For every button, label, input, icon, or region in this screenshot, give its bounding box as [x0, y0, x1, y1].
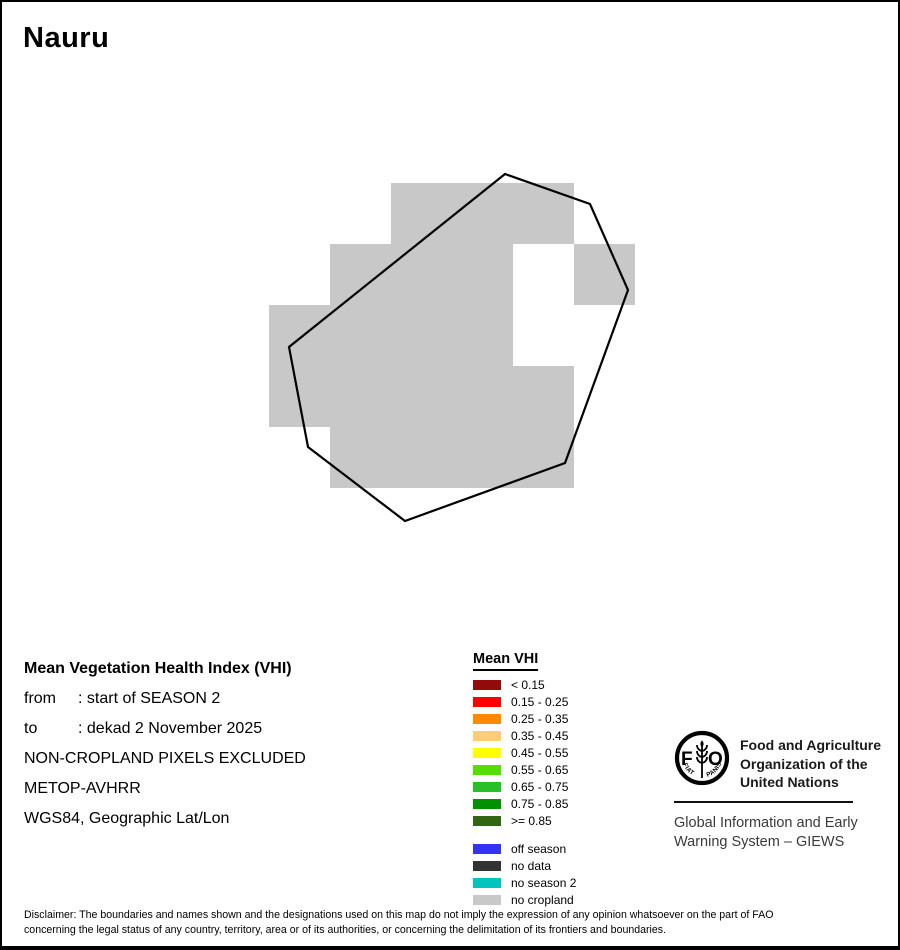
- org-name-line: United Nations: [740, 773, 881, 792]
- map-page: Nauru Mean Vegetation Health Index (VHI)…: [0, 0, 900, 950]
- org-name: Food and Agriculture Organization of the…: [740, 736, 881, 792]
- legend-swatch: [473, 731, 501, 741]
- info-row: METOP-AVHRR: [24, 774, 454, 804]
- no-cropland-cell: [269, 366, 574, 427]
- disclaimer-line: Disclaimer: The boundaries and names sho…: [24, 908, 894, 923]
- legend-label: off season: [511, 842, 566, 856]
- legend-swatch: [473, 782, 501, 792]
- legend-label: 0.75 - 0.85: [511, 797, 568, 811]
- legend-label: 0.55 - 0.65: [511, 763, 568, 777]
- legend-row: 0.65 - 0.75: [472, 778, 672, 795]
- legend-label: >= 0.85: [511, 814, 552, 828]
- legend-row: < 0.15: [472, 676, 672, 693]
- info-rows: from: start of SEASON 2to: dekad 2 Novem…: [24, 684, 454, 834]
- no-cropland-cell: [269, 305, 513, 366]
- giews-name-line: Warning System – GIEWS: [674, 833, 858, 852]
- no-cropland-cell: [574, 244, 635, 305]
- giews-name: Global Information and Early Warning Sys…: [674, 814, 858, 852]
- legend: Mean VHI < 0.150.15 - 0.250.25 - 0.350.3…: [472, 650, 672, 908]
- legend-title: Mean VHI: [473, 651, 538, 671]
- info-row-value: : dekad 2 November 2025: [78, 720, 262, 737]
- legend-swatch: [473, 680, 501, 690]
- legend-label: 0.65 - 0.75: [511, 780, 568, 794]
- legend-swatch: [473, 816, 501, 826]
- info-row-value: WGS84, Geographic Lat/Lon: [24, 810, 229, 827]
- info-title: Mean Vegetation Health Index (VHI): [24, 654, 454, 684]
- legend-row: 0.35 - 0.45: [472, 727, 672, 744]
- legend-swatch: [473, 895, 501, 905]
- legend-swatch: [473, 765, 501, 775]
- giews-name-line: Global Information and Early: [674, 814, 858, 833]
- legend-swatch: [473, 748, 501, 758]
- legend-swatch: [473, 697, 501, 707]
- org-name-line: Food and Agriculture: [740, 736, 881, 755]
- info-row: WGS84, Geographic Lat/Lon: [24, 804, 454, 834]
- brand-divider: [674, 801, 853, 803]
- legend-label: < 0.15: [511, 678, 545, 692]
- legend-class-rows: < 0.150.15 - 0.250.25 - 0.350.35 - 0.450…: [472, 676, 672, 829]
- info-row-label: from: [24, 684, 78, 714]
- legend-label: 0.45 - 0.55: [511, 746, 568, 760]
- info-row: NON-CROPLAND PIXELS EXCLUDED: [24, 744, 454, 774]
- legend-row: no cropland: [472, 891, 672, 908]
- disclaimer: Disclaimer: The boundaries and names sho…: [24, 908, 894, 937]
- legend-label: 0.35 - 0.45: [511, 729, 568, 743]
- legend-label: 0.25 - 0.35: [511, 712, 568, 726]
- legend-swatch: [473, 799, 501, 809]
- org-name-line: Organization of the: [740, 755, 881, 774]
- disclaimer-line: concerning the legal status of any count…: [24, 923, 894, 938]
- info-row-value: NON-CROPLAND PIXELS EXCLUDED: [24, 750, 306, 767]
- legend-row: >= 0.85: [472, 812, 672, 829]
- info-row-value: METOP-AVHRR: [24, 780, 141, 797]
- legend-row: 0.55 - 0.65: [472, 761, 672, 778]
- legend-label: no season 2: [511, 876, 576, 890]
- legend-label: no cropland: [511, 893, 574, 907]
- legend-label: no data: [511, 859, 551, 873]
- legend-swatch: [473, 878, 501, 888]
- info-row: to: dekad 2 November 2025: [24, 714, 454, 744]
- legend-extra-rows: off seasonno datano season 2no cropland: [472, 840, 672, 908]
- info-row-value: : start of SEASON 2: [78, 690, 220, 707]
- legend-row: off season: [472, 840, 672, 857]
- legend-row: 0.75 - 0.85: [472, 795, 672, 812]
- legend-swatch: [473, 861, 501, 871]
- country-outline: [289, 174, 628, 521]
- legend-row: 0.45 - 0.55: [472, 744, 672, 761]
- legend-swatch: [473, 714, 501, 724]
- info-row: from: start of SEASON 2: [24, 684, 454, 714]
- fao-wheat-emblem-icon: F O FIAT PANIS: [674, 729, 730, 787]
- legend-swatch: [473, 844, 501, 854]
- no-cropland-cell: [391, 183, 574, 244]
- legend-row: 0.25 - 0.35: [472, 710, 672, 727]
- legend-label: 0.15 - 0.25: [511, 695, 568, 709]
- page-title: Nauru: [23, 22, 109, 55]
- info-row-label: to: [24, 714, 78, 744]
- no-cropland-cell: [330, 427, 574, 488]
- legend-row: 0.15 - 0.25: [472, 693, 672, 710]
- info-block: Mean Vegetation Health Index (VHI) from:…: [24, 654, 454, 834]
- legend-row: no data: [472, 857, 672, 874]
- legend-row: no season 2: [472, 874, 672, 891]
- no-cropland-cell: [330, 244, 513, 305]
